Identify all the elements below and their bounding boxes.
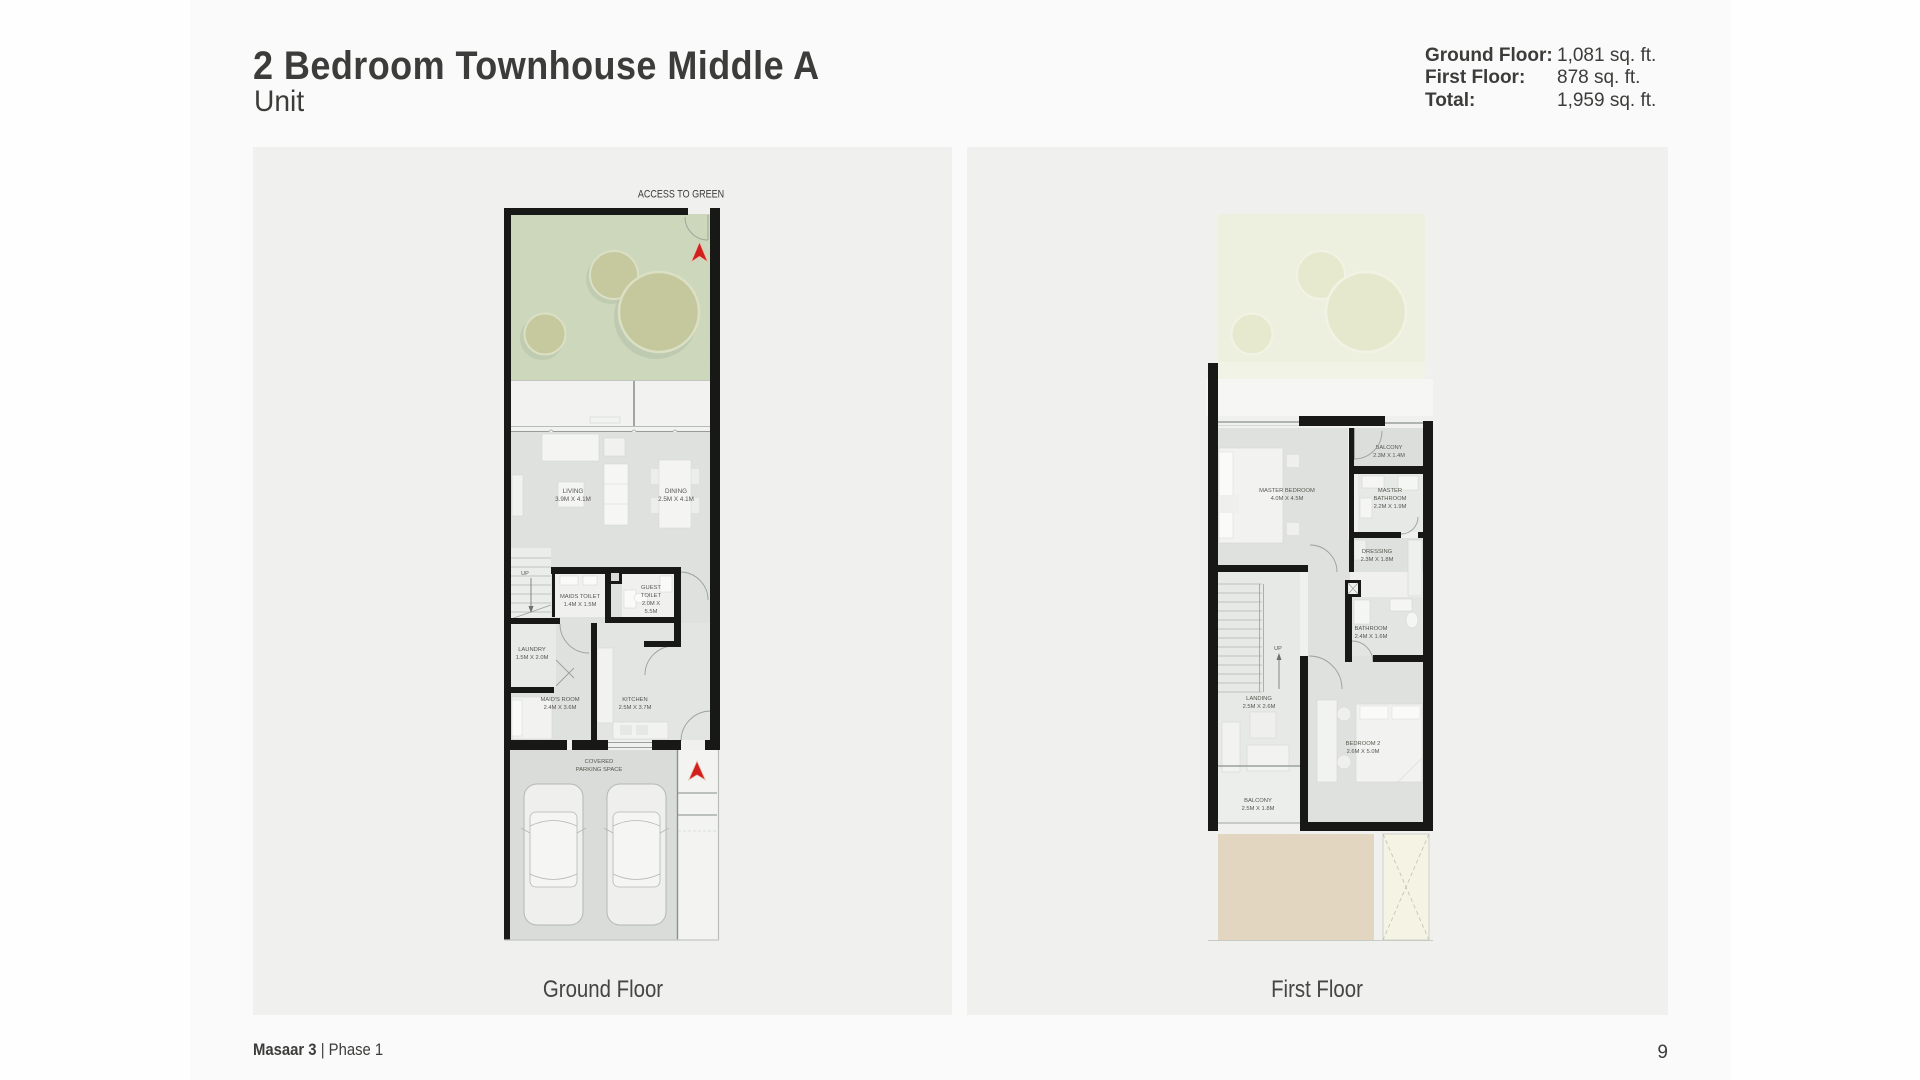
svg-text:PARKING SPACE: PARKING SPACE xyxy=(576,767,623,773)
svg-text:2.0M X: 2.0M X xyxy=(642,601,660,607)
svg-text:BALCONY: BALCONY xyxy=(1376,445,1403,451)
svg-text:2.5M X 1.8M: 2.5M X 1.8M xyxy=(1242,806,1275,812)
svg-text:LANDING: LANDING xyxy=(1246,696,1272,702)
svg-text:2.5M X 2.6M: 2.5M X 2.6M xyxy=(1243,704,1276,710)
svg-text:TOILET: TOILET xyxy=(641,593,662,599)
svg-text:MAID'S ROOM: MAID'S ROOM xyxy=(540,697,579,703)
svg-text:2.6M X 5.0M: 2.6M X 5.0M xyxy=(1347,749,1380,755)
svg-text:MASTER BEDROOM: MASTER BEDROOM xyxy=(1259,488,1315,494)
svg-text:DRESSING: DRESSING xyxy=(1362,549,1393,555)
svg-text:BALCONY: BALCONY xyxy=(1244,798,1272,804)
svg-text:BATHROOM: BATHROOM xyxy=(1373,496,1406,502)
svg-text:DINING: DINING xyxy=(665,488,687,495)
svg-text:2.5M X 4.1M: 2.5M X 4.1M xyxy=(658,496,694,503)
svg-text:2.4M X 1.6M: 2.4M X 1.6M xyxy=(1355,634,1388,640)
svg-text:2.4M X 3.6M: 2.4M X 3.6M xyxy=(544,705,577,711)
svg-text:3.9M X 4.1M: 3.9M X 4.1M xyxy=(555,496,591,503)
svg-text:MASTER: MASTER xyxy=(1378,488,1402,494)
svg-text:2.5M X 3.7M: 2.5M X 3.7M xyxy=(619,705,652,711)
svg-text:UP: UP xyxy=(521,571,529,577)
svg-text:2.3M X 1.4M: 2.3M X 1.4M xyxy=(1373,453,1405,459)
svg-text:COVERED: COVERED xyxy=(585,759,614,765)
svg-text:KITCHEN: KITCHEN xyxy=(622,697,647,703)
svg-text:ACCESS TO GREEN: ACCESS TO GREEN xyxy=(638,189,724,201)
svg-text:BATHROOM: BATHROOM xyxy=(1354,626,1387,632)
svg-text:LIVING: LIVING xyxy=(563,488,584,495)
svg-text:4.0M X 4.5M: 4.0M X 4.5M xyxy=(1271,496,1304,502)
svg-text:UP: UP xyxy=(1274,646,1282,652)
svg-text:LAUNDRY: LAUNDRY xyxy=(518,647,546,653)
svg-text:5.5M: 5.5M xyxy=(645,609,658,615)
svg-text:2.3M X 1.8M: 2.3M X 1.8M xyxy=(1361,557,1394,563)
svg-text:1.4M X 1.5M: 1.4M X 1.5M xyxy=(564,602,597,608)
svg-text:BEDROOM 2: BEDROOM 2 xyxy=(1346,741,1381,747)
svg-text:MAIDS TOILET: MAIDS TOILET xyxy=(560,594,601,600)
svg-text:GUEST: GUEST xyxy=(641,585,661,591)
svg-text:2.2M X 1.9M: 2.2M X 1.9M xyxy=(1374,504,1407,510)
svg-text:1.5M X 2.0M: 1.5M X 2.0M xyxy=(516,655,549,661)
